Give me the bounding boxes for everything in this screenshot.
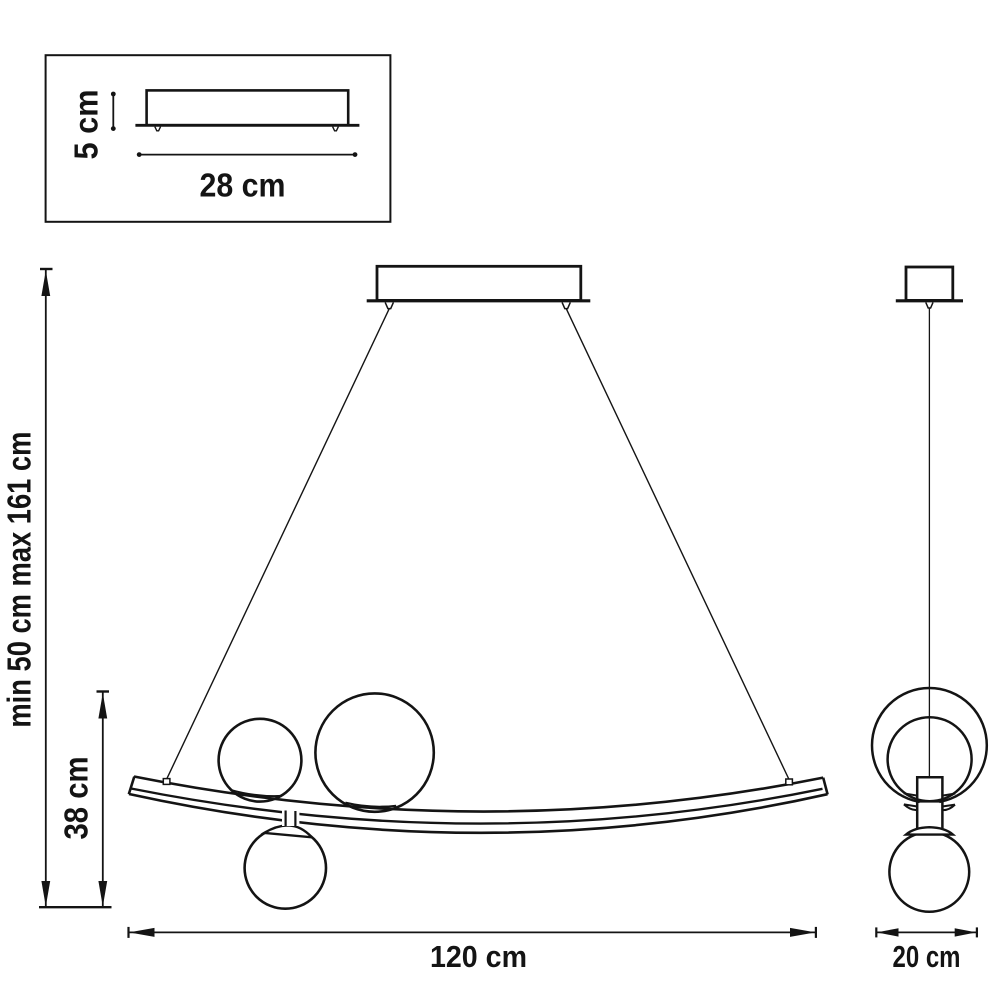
svg-text:5 cm: 5 cm (68, 90, 105, 160)
svg-text:28 cm: 28 cm (200, 167, 286, 204)
svg-text:120 cm: 120 cm (430, 939, 527, 974)
svg-text:20 cm: 20 cm (893, 939, 961, 974)
svg-text:min 50 cm max 161 cm: min 50 cm max 161 cm (0, 432, 37, 728)
svg-text:38 cm: 38 cm (58, 757, 95, 840)
